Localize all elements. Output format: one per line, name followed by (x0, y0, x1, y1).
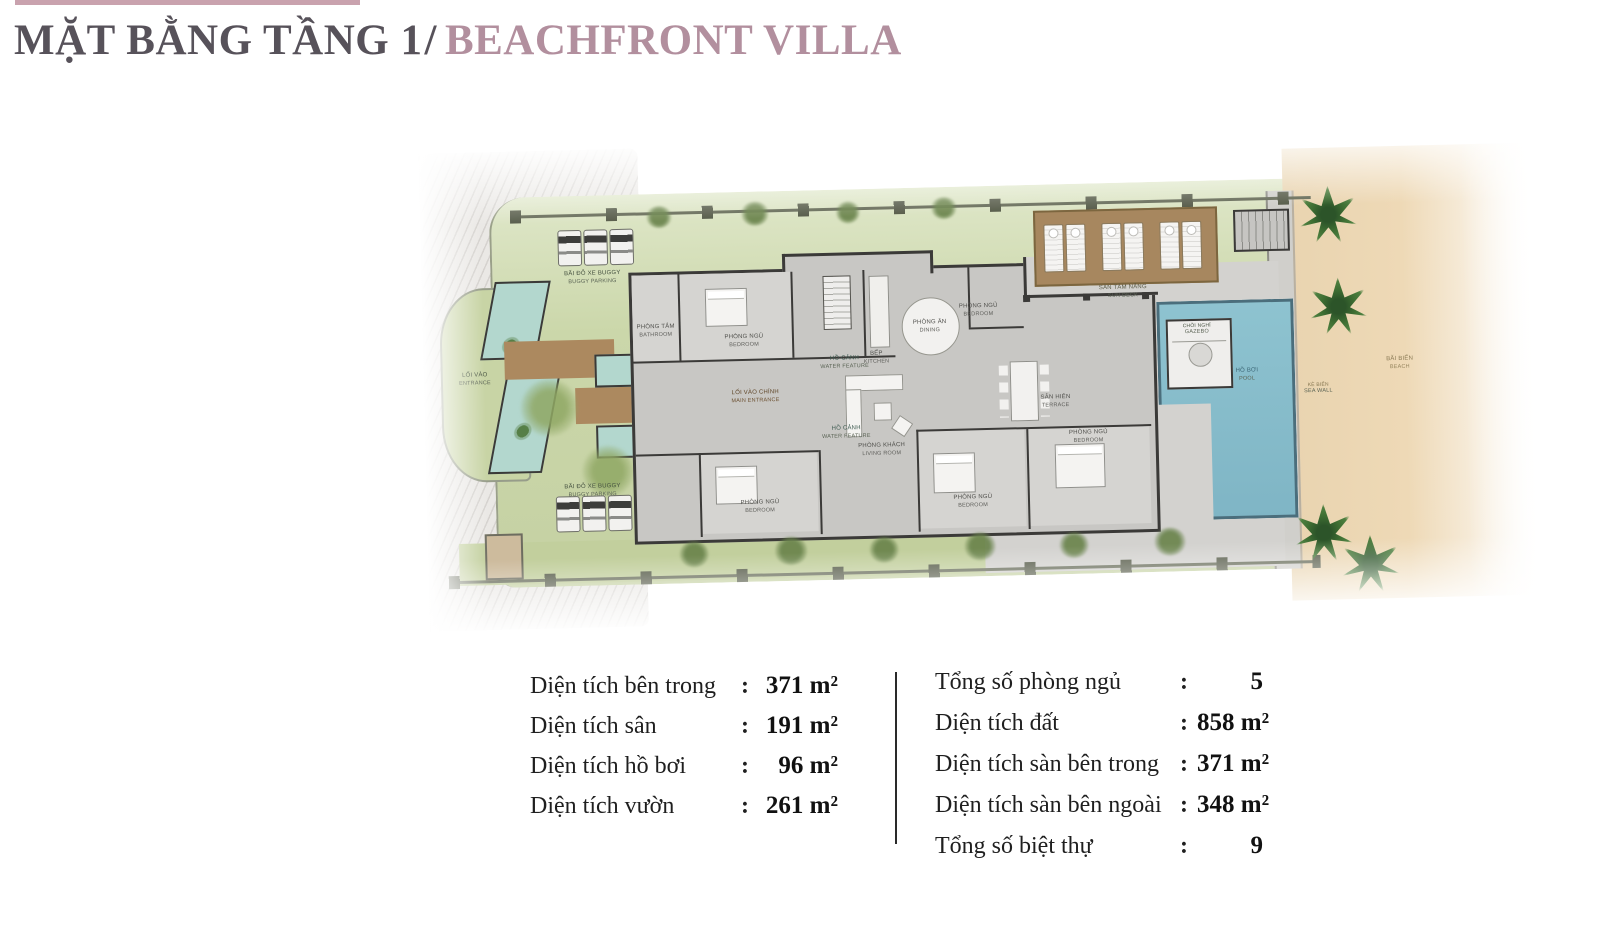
label-bedroom: PHÒNG NGỦBEDROOM (724, 333, 763, 348)
label-sea-wall: KÈ BIỂNSEA WALL (1304, 382, 1333, 396)
stat-label: Tổng số phòng ngủ (935, 669, 1177, 696)
accent-bar (15, 0, 360, 5)
label-sun-deck: SÀN TẮM NẮNGSUN DECK (1099, 284, 1147, 300)
stat-value: 371 m² (752, 672, 838, 700)
stat-row-bedroom-count: Tổng số phòng ngủ : 5 (935, 668, 1365, 696)
site-plan: BÃI ĐỖ XE BUGGYBUGGY PARKING BÃI ĐỖ XE B… (419, 114, 1556, 641)
stat-value: 371 m² (1191, 750, 1269, 778)
stat-colon: : (738, 713, 752, 740)
sun-lounger (1065, 224, 1086, 272)
coffee-table (874, 402, 892, 420)
stat-row-pool-area: Diện tích hồ bơi : 96 m² (530, 752, 880, 780)
buggy-cart (582, 495, 607, 532)
label-bedroom: PHÒNG NGỦBEDROOM (959, 303, 998, 318)
bed (1055, 443, 1106, 488)
outdoor-dining-table (1010, 361, 1039, 422)
label-beach: BÃI BIỂNBEACH (1386, 356, 1413, 371)
staircase (822, 275, 851, 330)
buggy-cart (609, 229, 634, 266)
stat-value: 858 m² (1191, 709, 1269, 737)
stat-value: 191 m² (752, 712, 838, 740)
label-bedroom: PHÒNG NGỦBEDROOM (953, 494, 992, 509)
stat-colon: : (1177, 710, 1191, 737)
label-bedroom-master: PHÒNG NGỦBEDROOM (1069, 429, 1108, 444)
sun-lounger (1043, 224, 1064, 272)
label-entrance: LỐI VÀOENTRANCE (459, 372, 491, 387)
label-kitchen: BẾPKITCHEN (864, 350, 890, 365)
bed (933, 452, 976, 493)
stat-label: Diện tích hồ bơi (530, 753, 738, 780)
stats-column-left: Diện tích bên trong : 371 m² Diện tích s… (530, 672, 880, 832)
stat-row-land-area: Diện tích đất : 858 m² (935, 709, 1365, 737)
terrace-column (1023, 295, 1030, 302)
stat-value: 96 m² (752, 752, 838, 780)
label-bedroom: PHÒNG NGỦBEDROOM (741, 499, 780, 514)
stat-label: Diện tích vườn (530, 793, 738, 820)
stat-colon: : (1177, 751, 1191, 778)
label-main-entrance: LỐI VÀO CHÍNHMAIN ENTRANCE (731, 389, 779, 405)
sun-lounger (1101, 223, 1122, 271)
stat-label: Diện tích đất (935, 710, 1177, 737)
sun-lounger (1123, 222, 1144, 270)
label-terrace: SÂN HIÊNTERRACE (1040, 394, 1070, 409)
stat-colon: : (1177, 792, 1191, 819)
stat-row-indoor-floor-area: Diện tích sàn bên trong : 371 m² (935, 750, 1365, 778)
stat-row-interior-area: Diện tích bên trong : 371 m² (530, 672, 880, 700)
stat-colon: : (1177, 669, 1191, 696)
stat-label: Diện tích sàn bên trong (935, 751, 1177, 778)
stats-column-right: Tổng số phòng ngủ : 5 Diện tích đất : 85… (935, 668, 1365, 873)
stat-row-outdoor-floor-area: Diện tích sàn bên ngoài : 348 m² (935, 791, 1365, 819)
label-living-room: PHÒNG KHÁCHLIVING ROOM (858, 442, 905, 458)
buggy-cart (557, 230, 582, 267)
buggy-cart (608, 495, 633, 532)
sun-lounger (1159, 221, 1180, 269)
sun-deck (1033, 206, 1219, 286)
page-title-main: MẶT BẰNG TẦNG 1 (14, 17, 422, 64)
stat-colon: : (738, 793, 752, 820)
terrace-column (1083, 293, 1090, 300)
stat-colon: : (738, 753, 752, 780)
stat-colon: : (1177, 833, 1191, 860)
label-dining: PHÒNG ĂNDINING (913, 319, 947, 334)
bbq-station (1233, 209, 1290, 252)
stat-value: 5 (1191, 668, 1263, 696)
sun-lounger (1181, 221, 1202, 269)
utility-box (485, 533, 524, 580)
stat-colon: : (738, 673, 752, 700)
page-title-separator: / (424, 17, 436, 64)
buggy-cart (556, 496, 581, 533)
stat-label: Diện tích sàn bên ngoài (935, 792, 1177, 819)
stat-row-yard-area: Diện tích sân : 191 m² (530, 712, 880, 740)
bed (705, 288, 748, 327)
stat-value: 261 m² (752, 792, 838, 820)
stat-label: Diện tích sân (530, 713, 738, 740)
stat-label: Tổng số biệt thự (935, 833, 1177, 860)
stat-value: 348 m² (1191, 791, 1269, 819)
stats-divider (895, 672, 897, 844)
label-pool: HỒ BƠIPOOL (1235, 367, 1258, 382)
stat-value: 9 (1191, 832, 1263, 860)
stat-row-garden-area: Diện tích vườn : 261 m² (530, 792, 880, 820)
villa-top-notch (782, 250, 934, 277)
label-buggy-parking-top: BÃI ĐỖ XE BUGGYBUGGY PARKING (564, 270, 621, 286)
kitchen-counter (868, 275, 890, 347)
label-water-feature-upper: HỒ CẢNHWATER FEATURE (820, 355, 869, 371)
stat-row-villa-count: Tổng số biệt thự : 9 (935, 832, 1365, 860)
label-buggy-parking-bottom: BÃI ĐỖ XE BUGGYBUGGY PARKING (564, 483, 621, 499)
stat-label: Diện tích bên trong (530, 673, 738, 700)
buggy-cart (583, 229, 608, 266)
label-gazebo: CHÒI NGHỈGAZEBO (1183, 323, 1212, 337)
page-title: MẶT BẰNG TẦNG 1/BEACHFRONT VILLA (14, 16, 902, 65)
label-water-feature-lower: HỒ CẢNHWATER FEATURE (822, 425, 871, 441)
label-bathroom: PHÒNG TẮMBATHROOM (637, 324, 675, 339)
page-title-sub: BEACHFRONT VILLA (445, 17, 902, 64)
room-bathroom-top (631, 275, 679, 362)
